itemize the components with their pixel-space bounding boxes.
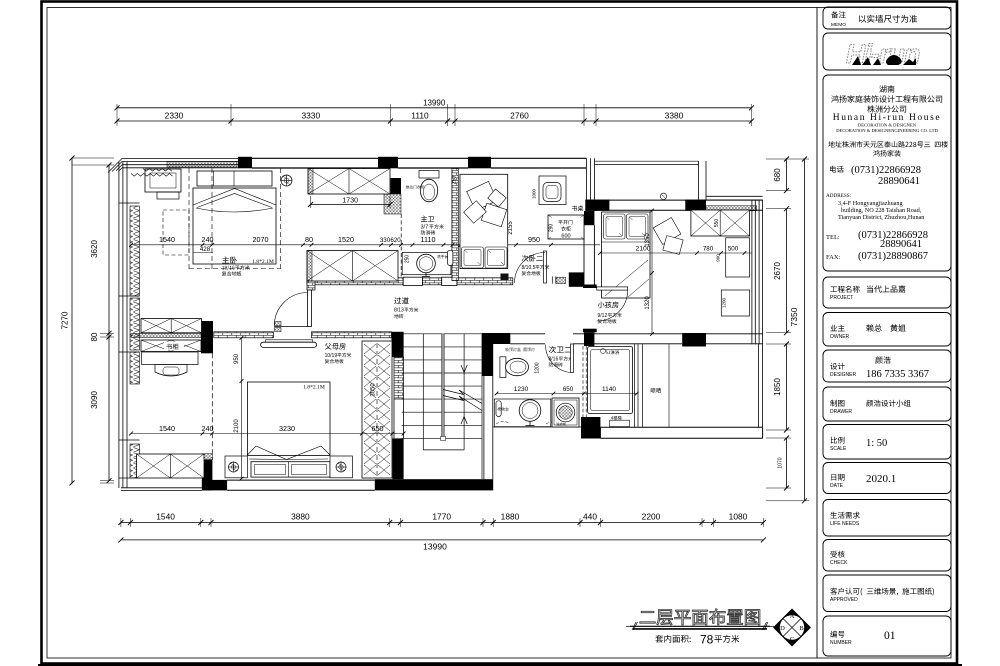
svg-text:1.8*2.1M: 1.8*2.1M bbox=[303, 385, 325, 391]
svg-text:950: 950 bbox=[234, 353, 240, 364]
svg-text:500: 500 bbox=[728, 246, 739, 253]
svg-text:2070: 2070 bbox=[253, 235, 269, 244]
svg-text:620: 620 bbox=[390, 237, 401, 244]
svg-text:440: 440 bbox=[583, 512, 597, 522]
svg-text:1230: 1230 bbox=[514, 386, 529, 393]
svg-text:DESIGNER: DESIGNER bbox=[830, 372, 857, 378]
svg-text:1730: 1730 bbox=[342, 198, 358, 205]
svg-text:3050: 3050 bbox=[371, 383, 377, 397]
svg-text:600: 600 bbox=[561, 234, 570, 240]
svg-text:900: 900 bbox=[716, 254, 721, 262]
svg-text:80: 80 bbox=[90, 332, 99, 341]
svg-text:9/12: 9/12 bbox=[598, 313, 608, 319]
svg-text:2200: 2200 bbox=[642, 512, 661, 522]
svg-text:3620: 3620 bbox=[90, 240, 99, 258]
svg-text:1200: 1200 bbox=[535, 362, 541, 373]
svg-text:3230: 3230 bbox=[279, 424, 295, 433]
svg-text:3880: 3880 bbox=[291, 512, 310, 522]
svg-text:2155: 2155 bbox=[508, 221, 514, 235]
svg-text:330: 330 bbox=[380, 237, 391, 244]
svg-text:2020.1: 2020.1 bbox=[866, 473, 896, 485]
svg-text:1850: 1850 bbox=[773, 378, 782, 396]
svg-text:2670: 2670 bbox=[773, 262, 782, 280]
svg-text:1000: 1000 bbox=[532, 188, 537, 199]
svg-text:186 7335 3367: 186 7335 3367 bbox=[866, 369, 929, 380]
svg-text:01: 01 bbox=[884, 630, 896, 642]
svg-text:78: 78 bbox=[700, 633, 714, 647]
svg-text:650: 650 bbox=[563, 386, 574, 393]
svg-text:1540: 1540 bbox=[159, 424, 175, 433]
svg-text:1880: 1880 bbox=[501, 512, 520, 522]
svg-text:1.8*2.1M: 1.8*2.1M bbox=[252, 259, 274, 265]
svg-text:DECORATION & DESIGNENGINEERING: DECORATION & DESIGNENGINEERING CO. LTD bbox=[836, 128, 938, 133]
svg-text:1140: 1140 bbox=[602, 386, 616, 393]
svg-text:A: A bbox=[790, 613, 795, 620]
svg-text:7270: 7270 bbox=[61, 311, 70, 329]
svg-text:2330: 2330 bbox=[165, 110, 184, 120]
svg-text:1770: 1770 bbox=[432, 512, 451, 522]
svg-text:28890641: 28890641 bbox=[878, 176, 920, 187]
svg-text:1080: 1080 bbox=[729, 512, 748, 522]
svg-text:1200: 1200 bbox=[722, 297, 727, 308]
svg-text:428: 428 bbox=[200, 246, 211, 253]
svg-text:1110: 1110 bbox=[411, 110, 429, 120]
svg-text:FAX:: FAX: bbox=[826, 254, 841, 261]
svg-text:PROJECT: PROJECT bbox=[830, 295, 853, 301]
svg-text:NUMBER: NUMBER bbox=[830, 640, 852, 646]
svg-text:Tianyuan District, Zhuzhou,Hun: Tianyuan District, Zhuzhou,Hunan bbox=[838, 214, 924, 221]
svg-text:80: 80 bbox=[305, 235, 313, 244]
svg-text:TEL:: TEL: bbox=[826, 234, 840, 241]
svg-text:950: 950 bbox=[528, 235, 540, 244]
svg-text:28890641: 28890641 bbox=[880, 239, 922, 250]
svg-text:550: 550 bbox=[714, 219, 720, 228]
svg-text:3330: 3330 bbox=[301, 110, 320, 120]
svg-text:3090: 3090 bbox=[90, 391, 99, 409]
svg-text:3,4-F Hongyangjiazhuang: 3,4-F Hongyangjiazhuang bbox=[838, 200, 903, 207]
svg-text:DATE: DATE bbox=[830, 483, 844, 489]
svg-text:(0731)28890867: (0731)28890867 bbox=[858, 251, 928, 262]
svg-text:OWNER: OWNER bbox=[830, 334, 850, 340]
svg-text:1350: 1350 bbox=[645, 233, 651, 247]
svg-text:240: 240 bbox=[202, 424, 214, 433]
svg-text:building, NO 228 Taishan Road,: building, NO 228 Taishan Road, bbox=[841, 207, 922, 214]
svg-text:7350: 7350 bbox=[789, 307, 799, 326]
svg-text:3/7: 3/7 bbox=[421, 225, 429, 231]
svg-text:1540: 1540 bbox=[159, 235, 175, 244]
svg-text:1540: 1540 bbox=[156, 512, 175, 522]
svg-text:250: 250 bbox=[452, 176, 458, 185]
svg-text:250: 250 bbox=[405, 255, 411, 264]
svg-text:8/10.5: 8/10.5 bbox=[522, 265, 536, 271]
svg-text:LIFE NEEDS: LIFE NEEDS bbox=[830, 521, 860, 527]
svg-text:2100: 2100 bbox=[234, 419, 240, 433]
svg-text:1520: 1520 bbox=[338, 235, 354, 244]
svg-text:240: 240 bbox=[202, 235, 214, 244]
svg-text:290: 290 bbox=[549, 224, 555, 233]
svg-text:1110: 1110 bbox=[421, 235, 436, 244]
svg-text:8/13: 8/13 bbox=[394, 308, 404, 314]
svg-text:DRAWER: DRAWER bbox=[830, 409, 852, 415]
svg-text:780: 780 bbox=[703, 246, 714, 253]
svg-text:680: 680 bbox=[773, 168, 782, 182]
svg-text:(0731)22866928: (0731)22866928 bbox=[851, 165, 921, 176]
svg-text:CHECK: CHECK bbox=[830, 560, 848, 566]
svg-text:B: B bbox=[799, 625, 804, 632]
svg-text:Hunan Hi-run House: Hunan Hi-run House bbox=[833, 113, 941, 123]
svg-text:650: 650 bbox=[372, 424, 384, 433]
svg-text:C: C bbox=[790, 636, 794, 643]
svg-text:10/19: 10/19 bbox=[325, 353, 338, 359]
svg-text:2760: 2760 bbox=[510, 110, 529, 120]
svg-text:D: D bbox=[780, 625, 785, 632]
svg-text:13990: 13990 bbox=[423, 542, 447, 552]
svg-text:DECORATION & DESIGNEN: DECORATION & DESIGNEN bbox=[858, 123, 917, 128]
svg-text:ADDRESS:: ADDRESS: bbox=[826, 193, 852, 199]
svg-text:1: 50: 1: 50 bbox=[866, 438, 887, 449]
svg-text:1320: 1320 bbox=[645, 296, 651, 310]
svg-text:1070: 1070 bbox=[778, 457, 784, 468]
svg-text:MEMO: MEMO bbox=[831, 22, 846, 28]
svg-text:3380: 3380 bbox=[665, 110, 684, 120]
svg-text:SCALE: SCALE bbox=[830, 446, 847, 452]
svg-text:APPROVED: APPROVED bbox=[830, 597, 858, 603]
svg-text:13990: 13990 bbox=[423, 98, 446, 107]
